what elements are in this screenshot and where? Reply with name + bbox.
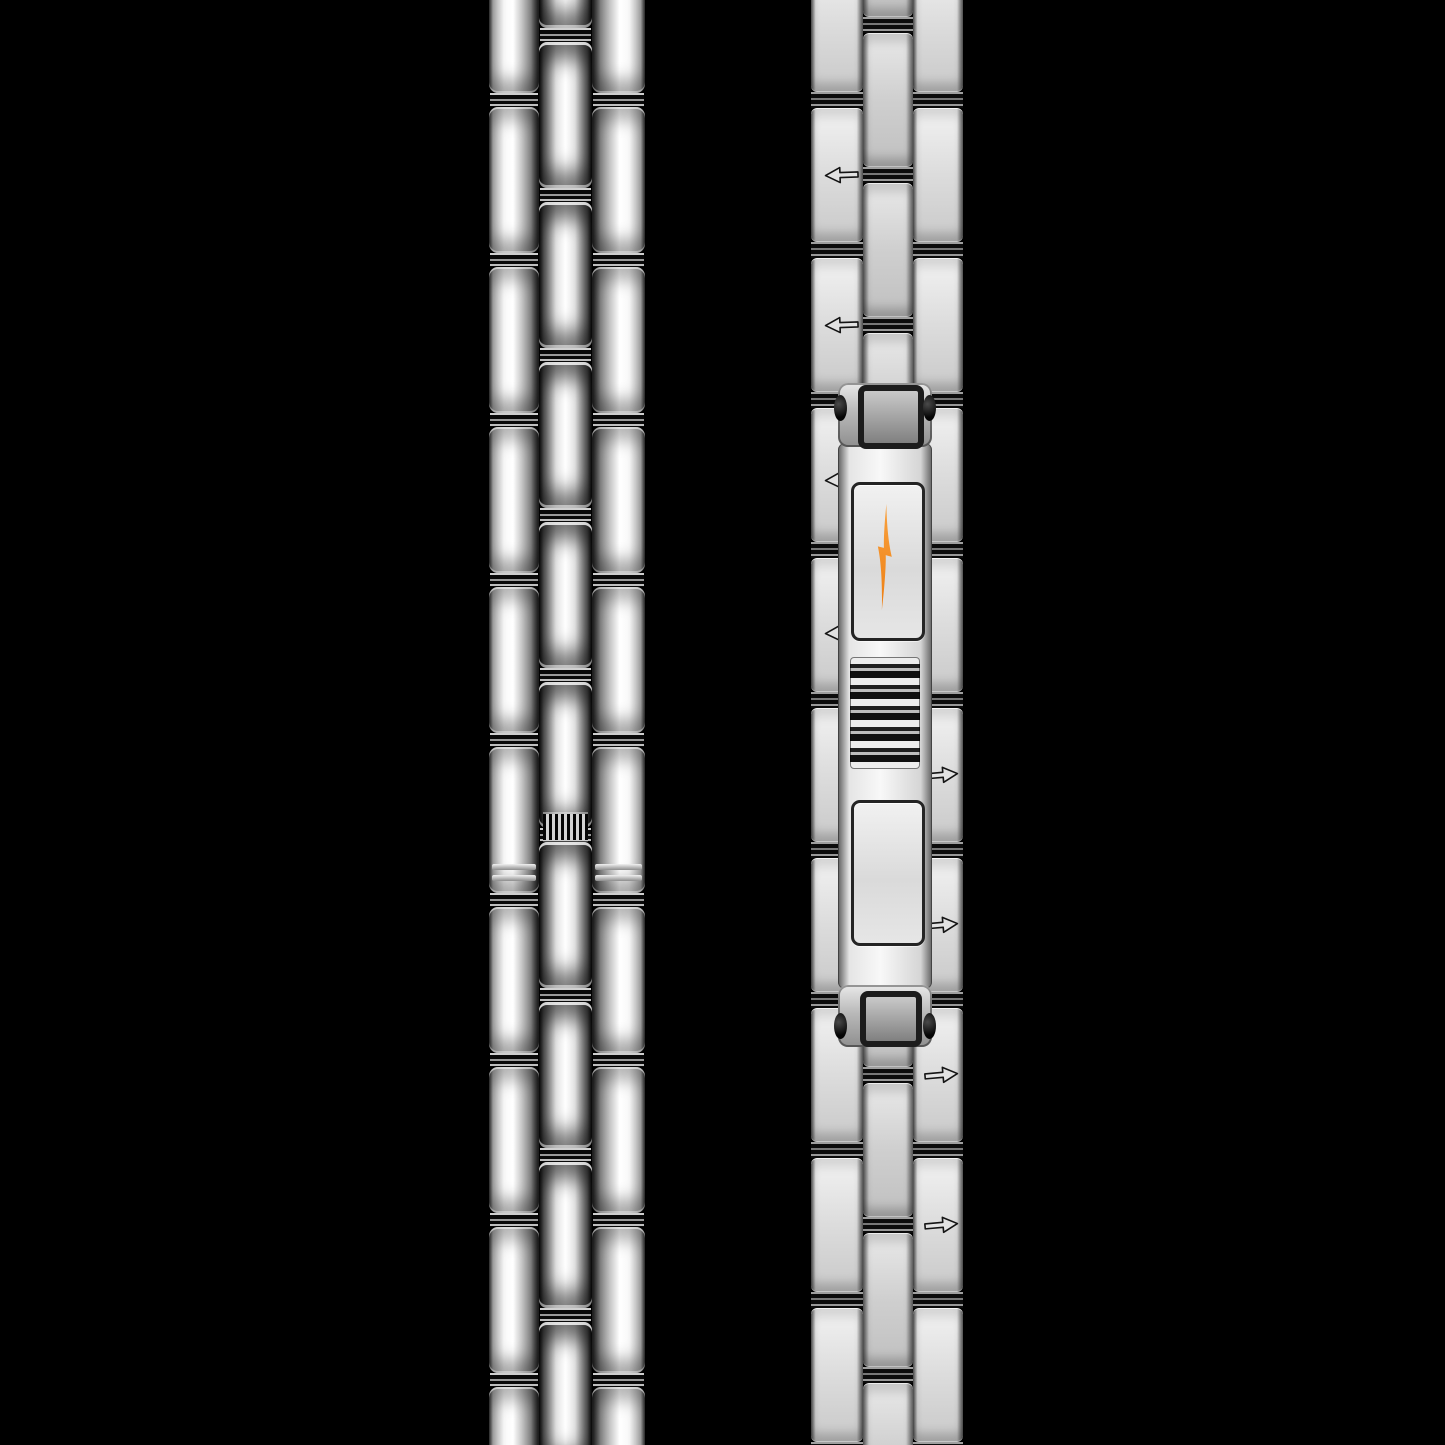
bracelet-link xyxy=(539,1162,592,1308)
bracelet-link xyxy=(592,267,645,413)
fold-over-clasp xyxy=(838,383,932,1047)
clasp-lower-window xyxy=(851,800,925,946)
link-separator xyxy=(540,188,591,202)
link-separator xyxy=(490,253,538,267)
link-direction-arrow-icon-right xyxy=(922,1064,959,1085)
link-separator xyxy=(490,413,538,427)
bracelet-link-column xyxy=(539,0,592,1445)
link-separator xyxy=(863,1067,913,1083)
bracelet-link xyxy=(913,108,963,242)
clasp-bottom-hinge-window xyxy=(860,991,922,1047)
clasp-hinge-pin xyxy=(923,395,936,421)
bracelet-link-column xyxy=(489,0,539,1445)
clasp-bottom-hinge xyxy=(838,985,932,1047)
bracelet-link xyxy=(489,587,539,733)
link-separator xyxy=(811,242,863,258)
clasp-top-hinge xyxy=(838,383,932,447)
bracelet-link xyxy=(489,1227,539,1373)
bracelet-link xyxy=(539,362,592,508)
bracelet-link xyxy=(592,1227,645,1373)
link-separator xyxy=(913,1292,963,1308)
bracelet-link xyxy=(539,682,592,828)
link-separator xyxy=(593,893,644,907)
bracelet-link xyxy=(539,522,592,668)
link-direction-arrow-icon-left xyxy=(824,165,861,184)
link-separator xyxy=(863,17,913,33)
bracelet-link xyxy=(863,33,913,167)
bracelet-front-view xyxy=(489,0,645,1445)
bracelet-link xyxy=(863,0,913,17)
bracelet-link-column xyxy=(592,0,645,1445)
link-separator xyxy=(490,573,538,587)
clasp-hinge-pin xyxy=(834,1013,847,1039)
front-clasp-slat xyxy=(595,875,642,881)
link-separator xyxy=(593,93,644,107)
bracelet-link xyxy=(811,0,863,92)
bracelet-link xyxy=(489,427,539,573)
link-separator xyxy=(863,1217,913,1233)
link-separator xyxy=(540,988,591,1002)
link-separator xyxy=(913,242,963,258)
link-separator xyxy=(540,1308,591,1322)
bracelet-link xyxy=(863,1233,913,1367)
link-separator xyxy=(490,893,538,907)
front-clasp-slat xyxy=(492,875,536,881)
bracelet-link xyxy=(592,1387,645,1445)
link-direction-arrow-icon-left xyxy=(824,315,861,334)
link-separator xyxy=(540,348,591,362)
bracelet-link xyxy=(811,1308,863,1442)
link-separator xyxy=(913,92,963,108)
bracelet-link xyxy=(913,258,963,392)
clasp-hinge-pin xyxy=(923,1013,936,1039)
clasp-hinge-pin xyxy=(834,395,847,421)
link-separator xyxy=(490,733,538,747)
bracelet-link xyxy=(863,183,913,317)
bracelet-link xyxy=(489,907,539,1053)
clasp-lightning-window xyxy=(851,482,925,641)
bracelet-back-view xyxy=(811,0,963,1445)
bracelet-link xyxy=(913,0,963,92)
link-separator xyxy=(863,317,913,333)
link-separator xyxy=(540,668,591,682)
link-separator xyxy=(593,1213,644,1227)
link-separator xyxy=(811,92,863,108)
link-separator xyxy=(593,1373,644,1387)
front-clasp-slat xyxy=(492,864,536,870)
product-photo-canvas xyxy=(0,0,1445,1445)
link-separator xyxy=(593,1053,644,1067)
bracelet-link xyxy=(539,1002,592,1148)
link-separator xyxy=(490,1213,538,1227)
bracelet-link xyxy=(592,107,645,253)
clasp-top-hinge-window xyxy=(858,385,924,449)
bracelet-link xyxy=(592,907,645,1053)
bracelet-link xyxy=(539,1322,592,1445)
bracelet-link xyxy=(489,107,539,253)
link-separator xyxy=(593,253,644,267)
bracelet-link xyxy=(539,0,592,28)
bracelet-link xyxy=(592,747,645,893)
bracelet-link xyxy=(592,1067,645,1213)
link-separator xyxy=(913,1142,963,1158)
bracelet-link xyxy=(811,1158,863,1292)
bracelet-link xyxy=(489,1387,539,1445)
clasp-grip-ridges xyxy=(850,657,920,769)
link-separator xyxy=(863,167,913,183)
lightning-bolt-icon xyxy=(874,500,896,614)
link-separator xyxy=(490,93,538,107)
bracelet-link xyxy=(539,202,592,348)
bracelet-link xyxy=(489,1067,539,1213)
bracelet-link xyxy=(489,0,539,93)
link-separator xyxy=(593,733,644,747)
link-separator xyxy=(540,1148,591,1162)
bracelet-link xyxy=(913,1308,963,1442)
link-separator xyxy=(863,1367,913,1383)
link-separator xyxy=(811,1292,863,1308)
bracelet-link xyxy=(539,42,592,188)
bracelet-link xyxy=(592,427,645,573)
bracelet-link xyxy=(863,1083,913,1217)
bracelet-link xyxy=(539,842,592,988)
link-separator xyxy=(490,1053,538,1067)
link-separator xyxy=(593,573,644,587)
link-separator xyxy=(490,1373,538,1387)
link-separator xyxy=(540,28,591,42)
link-direction-arrow-icon-right xyxy=(922,1214,959,1235)
front-clasp-ratchet-teeth xyxy=(543,814,588,840)
bracelet-link xyxy=(592,587,645,733)
bracelet-link xyxy=(489,747,539,893)
bracelet-link xyxy=(863,1383,913,1445)
link-separator xyxy=(593,413,644,427)
bracelet-link xyxy=(592,0,645,93)
bracelet-link xyxy=(489,267,539,413)
link-separator xyxy=(540,508,591,522)
link-separator xyxy=(811,1142,863,1158)
front-clasp-slat xyxy=(595,864,642,870)
